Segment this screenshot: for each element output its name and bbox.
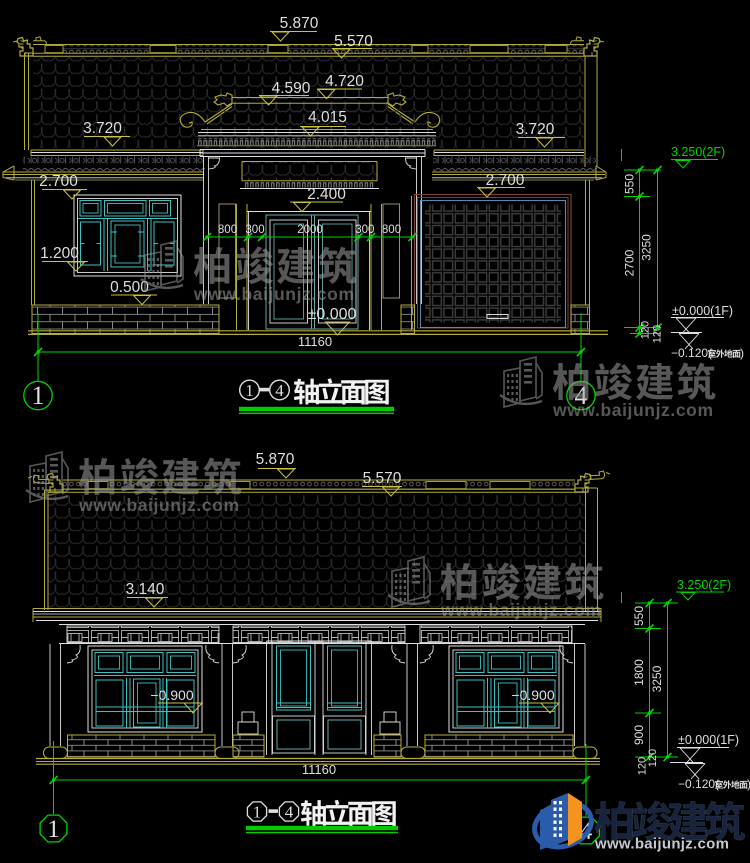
svg-text:−0.120(: −0.120( — [678, 777, 719, 791]
svg-text:4: 4 — [285, 803, 294, 822]
svg-text:4.015: 4.015 — [308, 109, 347, 126]
svg-text:1: 1 — [32, 381, 45, 410]
svg-text:3250: 3250 — [650, 665, 664, 692]
svg-text:): ) — [740, 346, 744, 360]
svg-text:2.700: 2.700 — [39, 173, 78, 190]
svg-text:−0.900: −0.900 — [150, 687, 193, 703]
svg-text:±0.000(1F): ±0.000(1F) — [672, 304, 733, 318]
svg-text:4.720: 4.720 — [325, 73, 364, 90]
svg-text:5.870: 5.870 — [256, 451, 295, 468]
svg-text:5.870: 5.870 — [280, 15, 319, 32]
svg-text:11160: 11160 — [298, 334, 332, 349]
svg-text:2.400: 2.400 — [307, 186, 346, 203]
svg-text:3.720: 3.720 — [83, 120, 122, 137]
svg-text:550: 550 — [623, 174, 637, 194]
svg-text:5.570: 5.570 — [363, 470, 402, 487]
svg-text:1: 1 — [245, 381, 254, 400]
svg-text:800: 800 — [382, 224, 401, 236]
svg-text:3.250(2F): 3.250(2F) — [671, 145, 725, 159]
svg-text:11160: 11160 — [302, 762, 336, 777]
svg-text:3.720: 3.720 — [516, 121, 555, 138]
svg-text:1.200: 1.200 — [40, 245, 79, 262]
svg-text:3.140: 3.140 — [126, 581, 165, 598]
svg-text:www.baijunjz.com: www.baijunjz.com — [594, 836, 729, 853]
svg-text:www.baijunjz.com: www.baijunjz.com — [78, 495, 240, 515]
svg-text:5.570: 5.570 — [334, 33, 373, 50]
svg-text:www.baijunjz.com: www.baijunjz.com — [193, 284, 355, 304]
svg-text:120: 120 — [647, 749, 659, 767]
svg-text:2700: 2700 — [623, 249, 637, 276]
svg-text:2000: 2000 — [297, 224, 323, 236]
svg-text:3.250(2F): 3.250(2F) — [677, 578, 731, 592]
svg-text:1: 1 — [253, 803, 262, 822]
svg-text:120: 120 — [637, 757, 649, 775]
svg-text:1800: 1800 — [632, 659, 646, 686]
svg-text:www.baijunjz.com: www.baijunjz.com — [440, 600, 602, 620]
svg-text:2.700: 2.700 — [486, 172, 525, 189]
svg-text:4.590: 4.590 — [272, 80, 311, 97]
svg-text:4: 4 — [275, 381, 284, 400]
svg-text:800: 800 — [218, 224, 237, 236]
svg-text:www.baijunjz.com: www.baijunjz.com — [552, 400, 714, 420]
svg-text:550: 550 — [632, 606, 646, 626]
svg-text:300: 300 — [245, 224, 264, 236]
svg-text:±0.000(1F): ±0.000(1F) — [678, 733, 739, 747]
svg-text:1: 1 — [47, 816, 60, 843]
svg-text:−0.120(: −0.120( — [671, 346, 712, 360]
svg-text:3250: 3250 — [640, 234, 654, 261]
svg-text:−0.900: −0.900 — [511, 687, 554, 703]
svg-text:120: 120 — [640, 321, 652, 339]
svg-text:300: 300 — [355, 224, 374, 236]
svg-text:900: 900 — [632, 725, 646, 745]
svg-text:±0.000: ±0.000 — [308, 306, 357, 323]
svg-text:120: 120 — [652, 325, 664, 343]
